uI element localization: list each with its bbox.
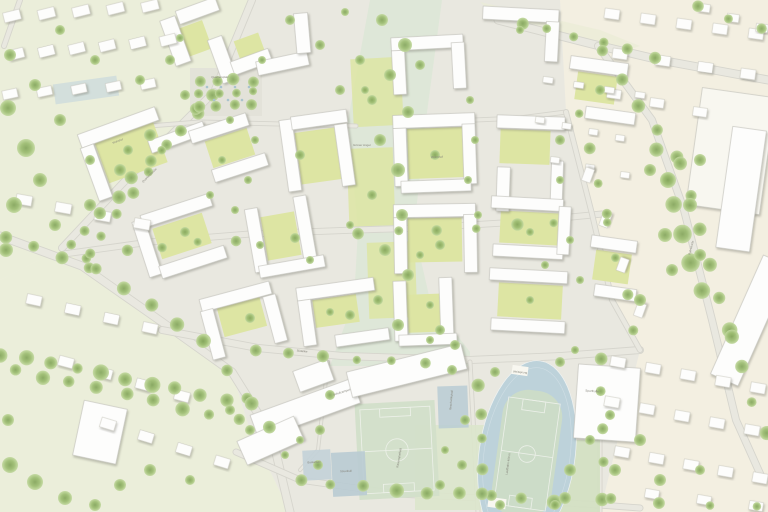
garden-sheds [620, 171, 630, 178]
courtyard-trees [326, 308, 334, 316]
avenue-trees [221, 365, 233, 377]
street-trees [353, 356, 361, 364]
street-trees [703, 258, 717, 272]
avenue-trees [80, 226, 90, 236]
corridor-trees [374, 134, 386, 146]
garden-sheds [573, 81, 584, 88]
courtyard [408, 218, 463, 263]
tree-cluster [85, 155, 95, 165]
avenue-trees [112, 209, 122, 219]
courtyard-trees [516, 26, 524, 34]
corridor-trees [367, 95, 377, 105]
scatter-trees [218, 156, 226, 164]
corridor-trees [384, 69, 396, 81]
corridor-trees [379, 244, 391, 256]
tree-cluster [683, 198, 697, 212]
courtyard-trees [435, 240, 445, 250]
garden-sheds [535, 116, 545, 123]
scatter-trees [335, 85, 345, 95]
tree-cluster [0, 100, 16, 116]
tree-cluster [185, 475, 195, 485]
tree-cluster [144, 129, 156, 141]
avenue-trees [72, 363, 82, 373]
street-trees [653, 497, 665, 509]
courtyard-trees [426, 301, 434, 309]
scatter-trees [541, 261, 549, 269]
street-trees [693, 223, 706, 236]
plaza-fountain-dots [234, 86, 237, 89]
school-trees [450, 340, 460, 350]
plaza-tree-grid [194, 89, 203, 98]
tree-cluster [17, 139, 35, 157]
courtyard-trees [555, 135, 565, 145]
avenue-trees [175, 402, 190, 417]
corridor-trees [398, 38, 412, 52]
corridor-trees [367, 190, 377, 200]
street-trees [611, 253, 620, 262]
scatter-trees [315, 40, 325, 50]
street-trees [569, 32, 578, 41]
tree-cluster [180, 90, 190, 100]
avenue-trees [44, 356, 57, 369]
sports-trees [296, 436, 304, 444]
court-label: Basketball [307, 460, 320, 465]
residential-block [464, 214, 478, 272]
scatter-trees [355, 55, 365, 65]
corridor-trees [402, 269, 414, 281]
avenue-trees [263, 421, 276, 434]
avenue-trees [56, 251, 69, 264]
residential-block [451, 42, 466, 89]
street-trees [594, 179, 603, 188]
residential-block [394, 218, 408, 274]
tree-cluster [84, 199, 96, 211]
street-trees [598, 457, 608, 467]
street-trees [597, 45, 608, 56]
plaza-tree-grid [230, 100, 240, 110]
street-trees [724, 14, 733, 23]
scatter-trees [474, 211, 482, 219]
plaza-tree-grid [246, 99, 257, 110]
avenue-trees [19, 350, 34, 365]
plaza-fountain-dots [241, 99, 244, 102]
plaza-tree-grid [215, 89, 224, 98]
school-trees [225, 405, 235, 415]
courtyard-trees [595, 85, 605, 95]
avenue-trees [90, 381, 103, 394]
corridor-trees [373, 295, 383, 305]
tree-cluster [666, 264, 678, 276]
avenue-trees [125, 171, 138, 184]
corridor-trees [391, 163, 405, 177]
tree-cluster [90, 55, 100, 65]
tree-cluster [165, 55, 175, 65]
garden-sheds [604, 86, 615, 93]
plaza-tree-grid [194, 101, 206, 113]
street-trees [357, 480, 369, 492]
sports-trees [495, 500, 505, 510]
avenue-trees [145, 298, 158, 311]
avenue-trees [121, 388, 134, 401]
street-trees [394, 226, 403, 235]
garden-sheds [543, 76, 554, 83]
avenue-trees [245, 397, 259, 411]
corridor-trees [435, 325, 445, 335]
street-trees [157, 243, 166, 252]
street-trees [756, 23, 766, 33]
street-trees [295, 474, 307, 486]
plaza-tree-grid [210, 101, 221, 112]
street-trees [632, 99, 646, 113]
scatter-trees [361, 86, 369, 94]
avenue-trees [193, 388, 206, 401]
tree-cluster [609, 464, 621, 476]
corridor-trees [376, 14, 388, 26]
tree-cluster [6, 197, 22, 213]
courtyard-trees [180, 227, 190, 237]
scatter-trees [306, 256, 314, 264]
street-trees [85, 249, 95, 259]
courtyard-trees [415, 60, 425, 70]
avenue-trees [168, 381, 181, 394]
corridor-lawn [347, 147, 396, 227]
avenue-trees [63, 376, 74, 387]
street-trees [477, 434, 487, 444]
avenue-trees [0, 231, 12, 244]
sports-trees [447, 365, 457, 375]
tree-cluster [89, 499, 101, 511]
sports-trees [571, 346, 579, 354]
tree-cluster [33, 173, 47, 187]
street-trees [193, 238, 201, 246]
plaza-tree-grid [249, 87, 257, 95]
avenue-trees [118, 372, 132, 386]
court-label: Streetball [340, 469, 352, 474]
residential-block [497, 115, 565, 130]
existing-houses [649, 98, 664, 109]
existing-houses [676, 18, 692, 30]
plaza-fountain-dots [220, 86, 223, 89]
tree-cluster [4, 49, 16, 61]
scatter-trees [466, 96, 474, 104]
avenue-trees [196, 334, 210, 348]
avenue-trees [28, 241, 39, 252]
street-trees [516, 493, 527, 504]
sports-trees [550, 500, 560, 510]
tree-cluster [694, 154, 706, 166]
map-layers: WohnhofGrüner AngerBasketballStreetballR… [0, 0, 768, 512]
plaza-tree-grid [248, 77, 259, 88]
tree-cluster [27, 474, 43, 490]
street-trees [649, 52, 661, 64]
courtyard-trees [176, 34, 184, 42]
school-trees [426, 336, 434, 344]
scatter-trees [556, 176, 564, 184]
street-trees [421, 487, 434, 500]
tree-cluster [634, 294, 646, 306]
scatter-trees [566, 236, 574, 244]
street-trees [652, 124, 663, 135]
street-trees [595, 353, 608, 366]
tree-cluster [54, 114, 66, 126]
street-trees [673, 157, 687, 171]
residential-block [462, 124, 477, 184]
sports-trees [555, 357, 565, 367]
corridor-trees [396, 209, 408, 221]
existing-houses [740, 68, 756, 80]
tree-cluster [644, 164, 656, 176]
avenue-trees [175, 125, 186, 136]
scatter-trees [471, 136, 479, 144]
plaza-label: Quartiersplatz [211, 75, 229, 79]
street-trees [692, 0, 704, 12]
tree-cluster [135, 75, 145, 85]
street-trees [325, 480, 335, 490]
residential-block [393, 281, 408, 341]
scatter-trees [206, 191, 214, 199]
site-plan-map: WohnhofGrüner AngerBasketballStreetballR… [0, 0, 768, 512]
scatter-trees [244, 176, 252, 184]
school-trees [245, 425, 255, 435]
avenue-trees [112, 190, 126, 204]
residential-block [557, 206, 571, 255]
corridor-trees [392, 319, 404, 331]
grove-trees [649, 142, 663, 156]
street-trees [472, 224, 481, 233]
tree-cluster [2, 414, 14, 426]
courtyard [499, 211, 559, 246]
avenue-trees [117, 281, 131, 295]
courtyard-trees [295, 150, 305, 160]
street-trees [747, 397, 757, 407]
tree-cluster [658, 228, 672, 242]
courtyard-trees [245, 313, 255, 323]
scatter-trees [341, 8, 349, 16]
corridor-trees [345, 310, 355, 320]
courtyard-label: Wohnhof [431, 155, 443, 159]
corridor-trees [402, 106, 414, 118]
avenue-trees [10, 364, 21, 375]
tree-cluster [29, 79, 41, 91]
street-trees [511, 218, 523, 230]
plaza-fountain-dots [248, 86, 251, 89]
avenue-trees [147, 394, 160, 407]
tree-cluster [144, 464, 156, 476]
garden-sheds [550, 156, 560, 163]
tree-cluster [49, 219, 61, 231]
sports-trees [441, 446, 449, 454]
scatter-trees [258, 56, 266, 64]
sports-trees [559, 492, 571, 504]
courtyard-trees [290, 233, 300, 243]
avenue-trees [145, 155, 157, 167]
school-trees [281, 451, 289, 459]
street-trees [628, 325, 638, 335]
avenue-trees [220, 393, 233, 406]
courtyard-trees [123, 145, 133, 155]
grove-trees [694, 282, 711, 299]
street-trees [622, 43, 633, 54]
street-trees [575, 109, 583, 117]
tree-cluster [654, 474, 666, 486]
tree-cluster [114, 164, 126, 176]
scatter-trees [256, 241, 264, 249]
existing-houses [640, 13, 656, 25]
scatter-trees [251, 136, 259, 144]
existing-houses [692, 107, 707, 118]
corridor-label: Grüner Anger [353, 143, 371, 147]
street-trees [622, 289, 633, 300]
garden-sheds [615, 134, 625, 141]
tree-cluster [2, 457, 18, 473]
existing-houses [712, 23, 728, 35]
sports-trees [315, 425, 325, 435]
scatter-trees [346, 221, 354, 229]
street-trees [605, 493, 616, 504]
street-trees [476, 488, 489, 501]
street-trees [431, 225, 442, 236]
avenue-trees [66, 240, 76, 250]
tree-cluster [605, 410, 615, 420]
garden-sheds [562, 122, 572, 129]
street-trees [475, 408, 487, 420]
garden-sheds [635, 91, 646, 98]
scatter-trees [226, 116, 234, 124]
grove-trees [665, 196, 682, 213]
street-trees [549, 219, 557, 227]
avenue-trees [204, 409, 214, 419]
tree-cluster [695, 465, 705, 475]
avenue-trees [127, 187, 139, 199]
tree-cluster [585, 435, 595, 445]
sports-trees [457, 460, 467, 470]
scatter-trees [231, 206, 239, 214]
plaza-tree-grid [195, 76, 206, 87]
site-plan-stage: WohnhofGrüner AngerBasketballStreetballR… [0, 0, 768, 512]
street-trees [122, 245, 133, 256]
street-trees [542, 24, 551, 33]
existing-houses [697, 61, 713, 73]
street-trees [753, 502, 761, 510]
street-trees [725, 330, 739, 344]
tree-cluster [58, 491, 72, 505]
tree-cluster [55, 25, 65, 35]
sports-trees [564, 464, 576, 476]
tree-cluster [660, 172, 676, 188]
street-trees [387, 356, 396, 365]
sports-trees [435, 480, 445, 490]
street-trees [603, 218, 611, 226]
sports-trees [490, 367, 500, 377]
street-trees [453, 487, 466, 500]
street-trees [231, 236, 242, 247]
street-trees [250, 345, 262, 357]
residential-block [401, 179, 471, 193]
grove-trees [673, 225, 692, 244]
scatter-trees [285, 15, 295, 25]
existing-houses [604, 8, 620, 20]
plaza-fountain-dots [213, 99, 216, 102]
street-trees [420, 358, 431, 369]
street-trees [389, 483, 404, 498]
tree-cluster [694, 249, 706, 261]
courtyard-trees [526, 296, 534, 304]
street-trees [616, 73, 628, 85]
scatter-trees [416, 251, 424, 259]
avenue-trees [144, 377, 160, 393]
street-trees [597, 423, 608, 434]
plaza-tree-grid [227, 73, 239, 85]
street-trees [735, 360, 748, 373]
street-trees [713, 292, 725, 304]
garden-sheds [588, 128, 598, 135]
plaza-fountain-dots [206, 86, 209, 89]
avenue-trees [96, 232, 105, 241]
tree-cluster [634, 434, 646, 446]
avenue-trees [94, 207, 106, 219]
avenue-trees [93, 364, 109, 380]
avenue-trees [234, 414, 245, 425]
avenue-trees [170, 317, 184, 331]
street-trees [283, 348, 294, 359]
avenue-trees [91, 263, 102, 274]
plaza-fountain-dots [227, 99, 230, 102]
courtyard [499, 129, 550, 165]
street-trees [471, 379, 484, 392]
street-trees [317, 350, 329, 362]
street-trees [584, 142, 596, 154]
street-trees [352, 228, 364, 240]
tree-cluster [114, 479, 126, 491]
street-trees [602, 209, 612, 219]
courtyard-trees [526, 228, 534, 236]
avenue-trees [157, 146, 166, 155]
plaza-tree-grid [232, 89, 241, 98]
avenue-trees [36, 371, 50, 385]
scatter-trees [464, 176, 472, 184]
street-trees [476, 463, 488, 475]
residential-block [393, 128, 408, 186]
sports-trees [460, 415, 470, 425]
street-trees [706, 501, 715, 510]
scatter-trees [576, 276, 584, 284]
